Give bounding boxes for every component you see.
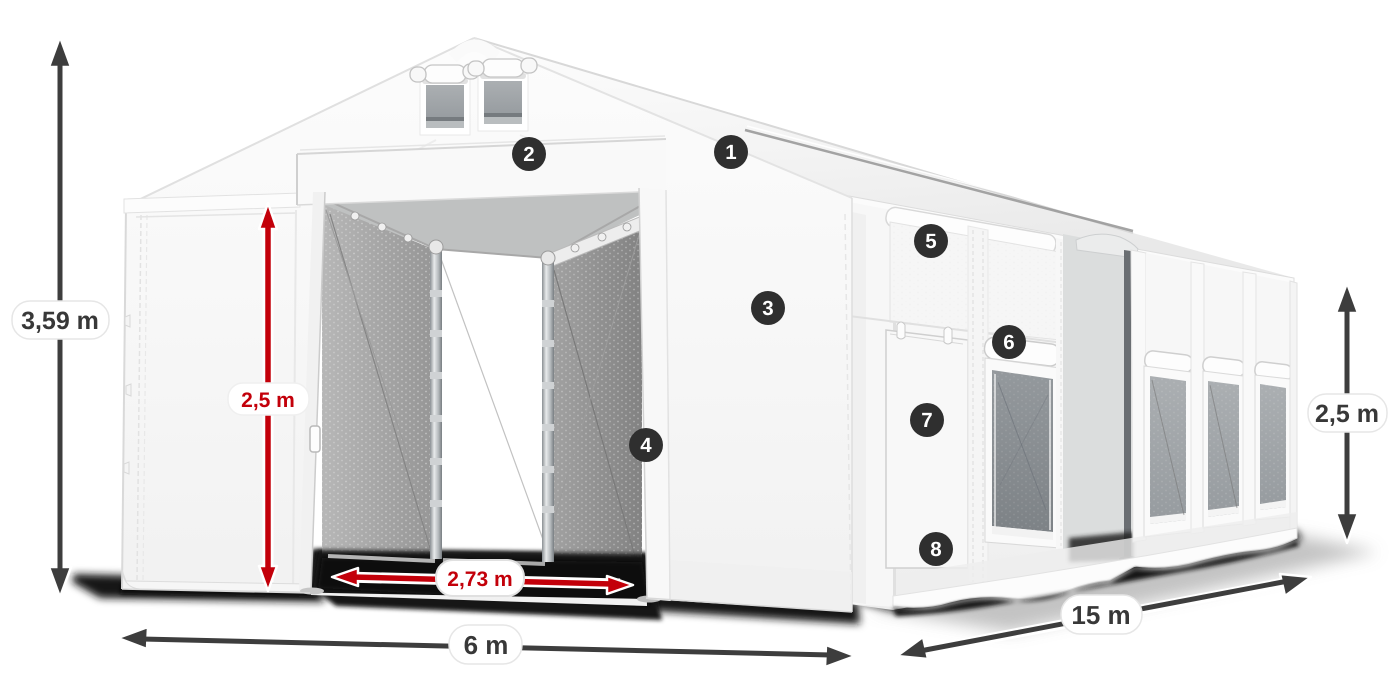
svg-text:2: 2 — [523, 143, 534, 166]
svg-text:7: 7 — [921, 409, 932, 432]
svg-text:2,73 m: 2,73 m — [447, 568, 512, 591]
svg-text:2,5 m: 2,5 m — [241, 389, 295, 412]
svg-text:5: 5 — [925, 230, 936, 253]
svg-text:15 m: 15 m — [1071, 600, 1130, 630]
svg-text:4: 4 — [640, 434, 652, 457]
svg-text:1: 1 — [725, 141, 736, 164]
svg-text:8: 8 — [930, 538, 941, 561]
svg-text:3,59 m: 3,59 m — [21, 307, 99, 335]
svg-text:6 m: 6 m — [464, 630, 509, 660]
svg-text:6: 6 — [1003, 331, 1014, 354]
svg-text:2,5 m: 2,5 m — [1315, 400, 1379, 428]
svg-text:3: 3 — [762, 297, 773, 320]
